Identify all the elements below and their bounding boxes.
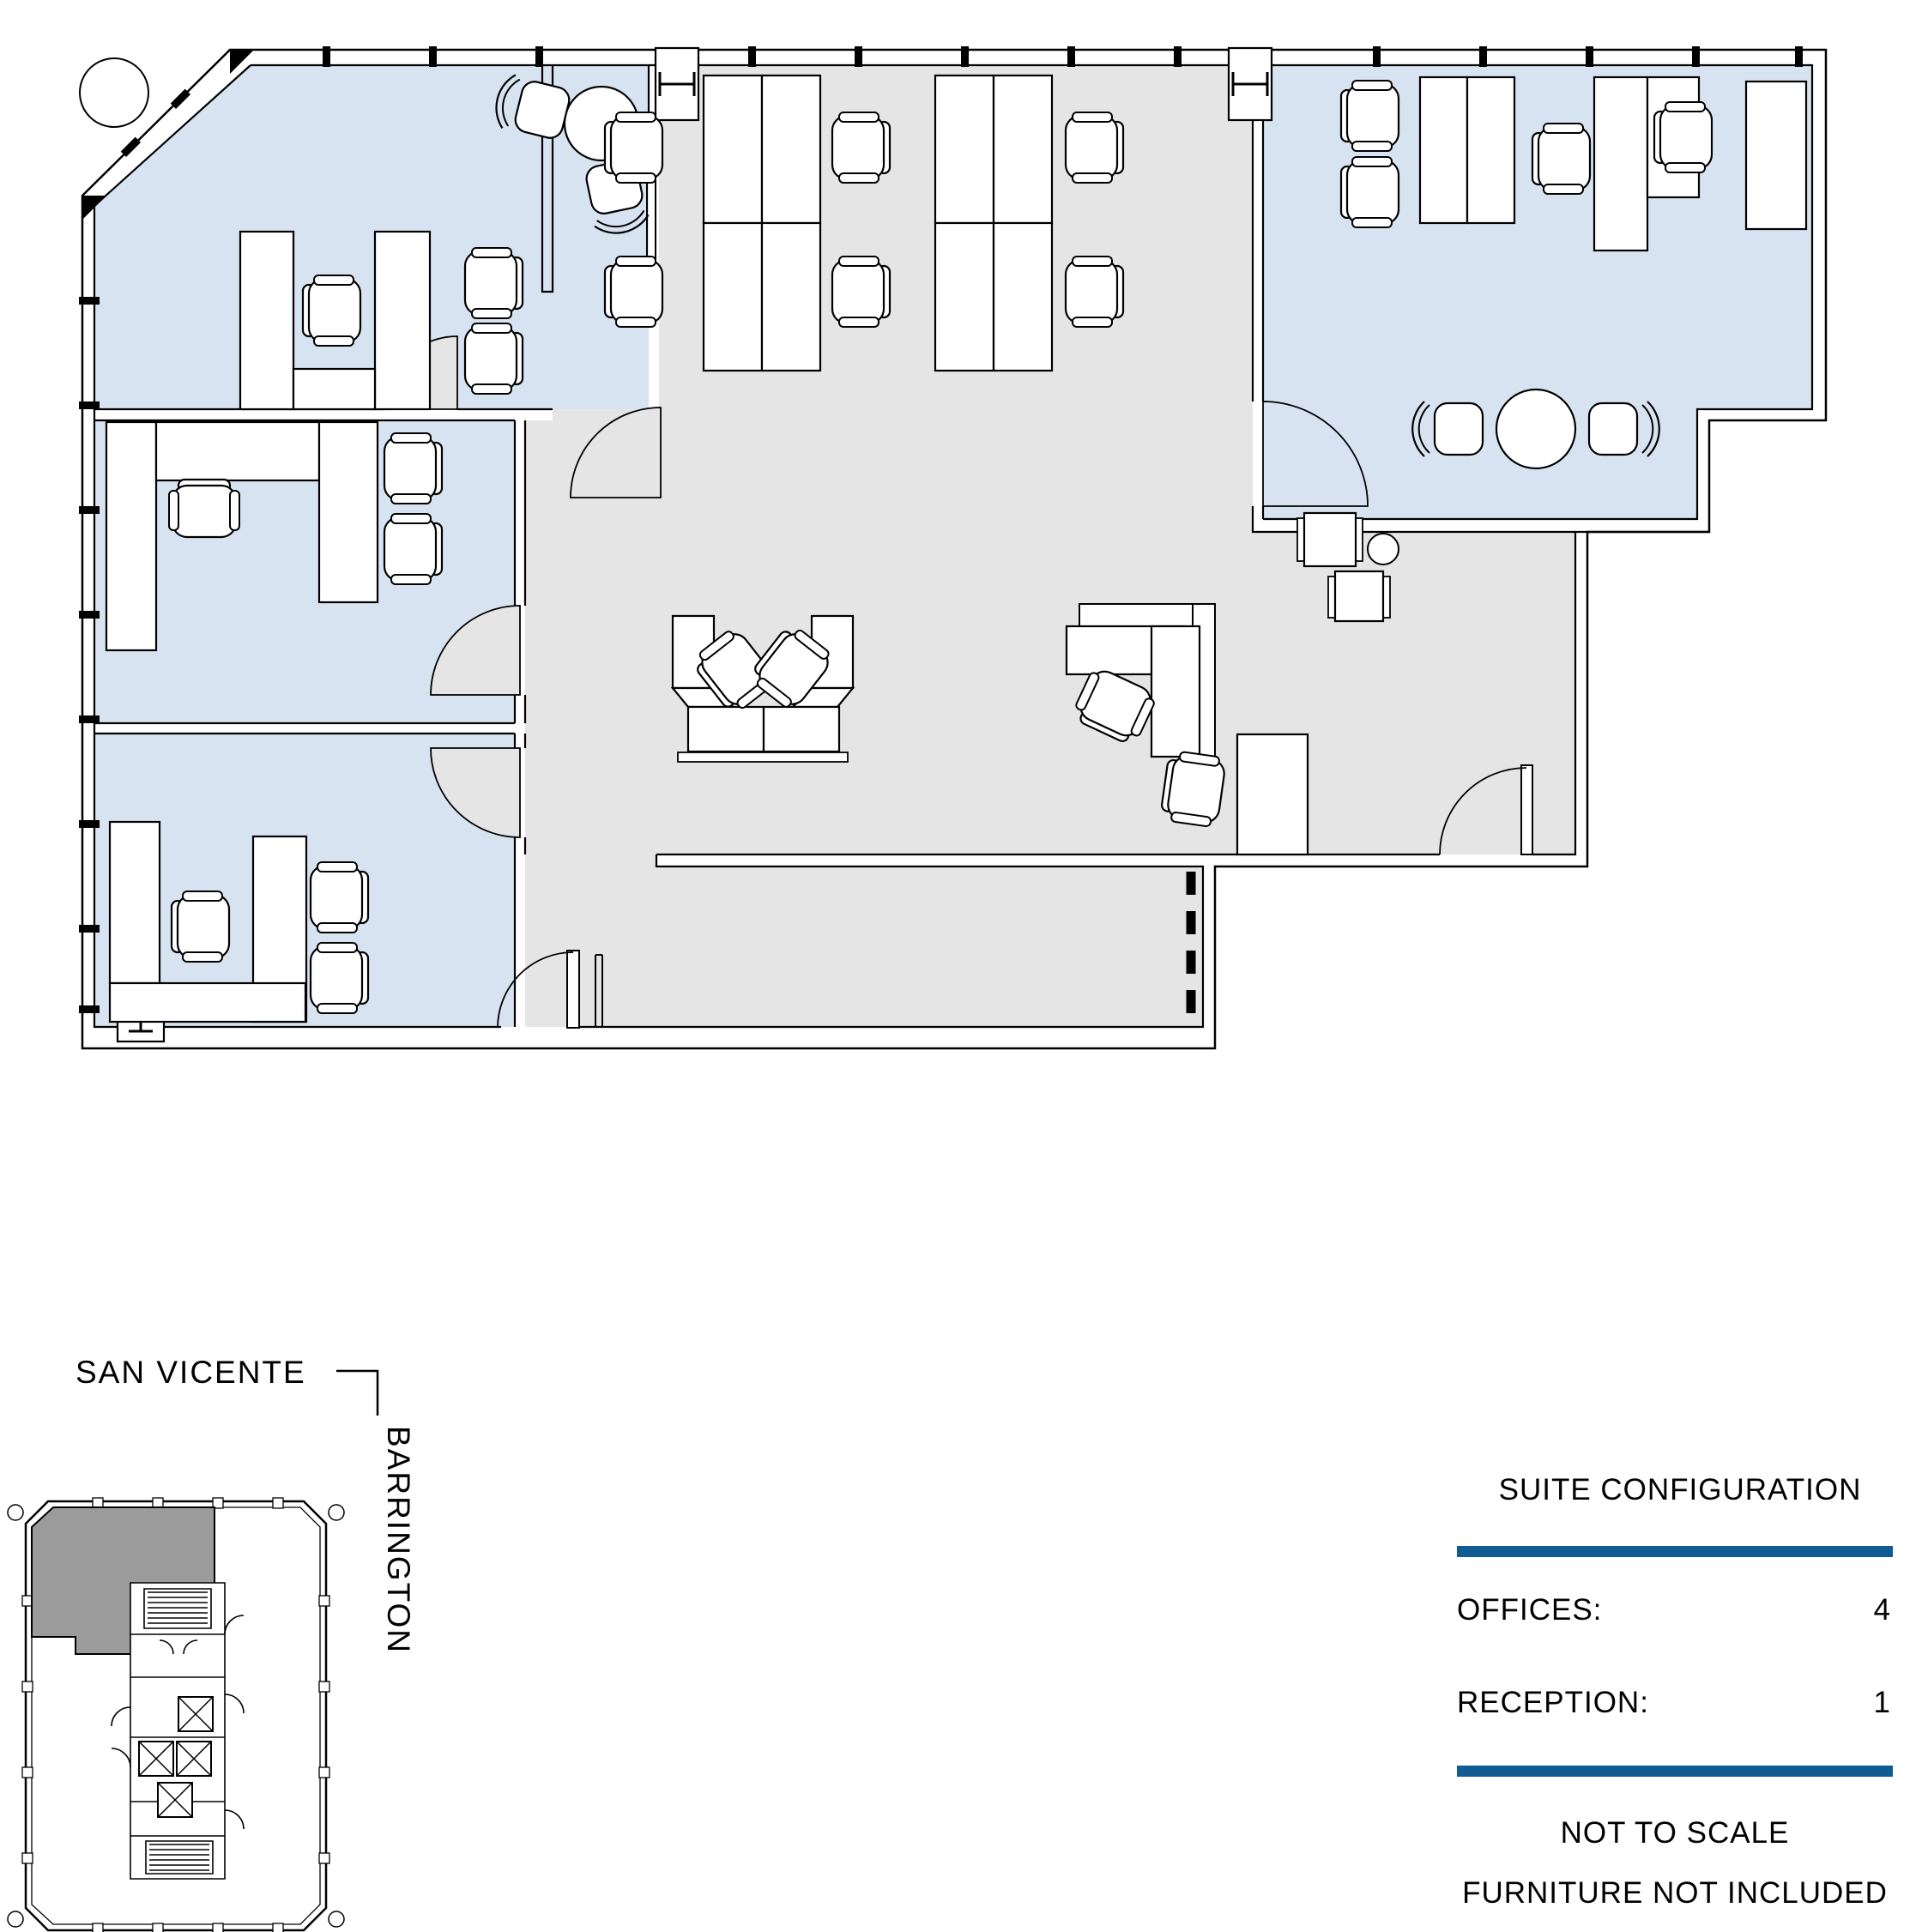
office-chair [465, 248, 523, 318]
office-chair [311, 862, 368, 933]
office-chair [311, 943, 368, 1013]
key-plan: SAN VICENTE BARRINGTON [8, 1355, 416, 1932]
legend-row-value: 1 [1874, 1686, 1891, 1719]
office-chair [169, 480, 239, 537]
legend-row-label: OFFICES: [1457, 1593, 1602, 1627]
legend-row-value: 4 [1874, 1593, 1891, 1627]
office-chair [384, 514, 442, 584]
legend-rule-bottom [1457, 1766, 1893, 1777]
main-floor-plan [79, 46, 1826, 1048]
street-label-side: BARRINGTON [381, 1426, 416, 1654]
legend: SUITE CONFIGURATION OFFICES: 4 RECEPTION… [1457, 1473, 1893, 1910]
floor-plan-svg: SAN VICENTE BARRINGTON [0, 0, 1922, 1932]
office-chair [1066, 112, 1123, 183]
street-leader-line [336, 1371, 378, 1416]
office-chair [1066, 257, 1123, 327]
legend-rule-top [1457, 1546, 1893, 1557]
h-column-icon [1229, 48, 1272, 120]
legend-note-scale: NOT TO SCALE [1561, 1816, 1790, 1850]
tree-icon [80, 58, 148, 127]
office-chair [303, 275, 360, 346]
office-chair [172, 891, 229, 962]
office-chair [832, 112, 890, 183]
stool [1368, 534, 1399, 565]
legend-title: SUITE CONFIGURATION [1499, 1473, 1862, 1506]
h-column-icon [656, 48, 698, 120]
meeting-table [1496, 389, 1575, 468]
legend-row-label: RECEPTION: [1457, 1686, 1649, 1719]
office-chair [605, 257, 662, 327]
floor-plan-page: { "key_plan": { "street_top": "SAN VICEN… [0, 0, 1922, 1932]
office-chair [832, 257, 890, 327]
legend-note-furniture: FURNITURE NOT INCLUDED [1462, 1876, 1888, 1910]
office-chair [605, 112, 662, 183]
office-chair [1341, 157, 1399, 227]
office-chair [384, 433, 442, 504]
office-chair [465, 323, 523, 394]
office-chair [1654, 102, 1712, 172]
street-label-top: SAN VICENTE [76, 1355, 306, 1390]
office-chair [1532, 124, 1590, 194]
building-core [112, 1583, 244, 1879]
office-chair [1341, 81, 1399, 151]
